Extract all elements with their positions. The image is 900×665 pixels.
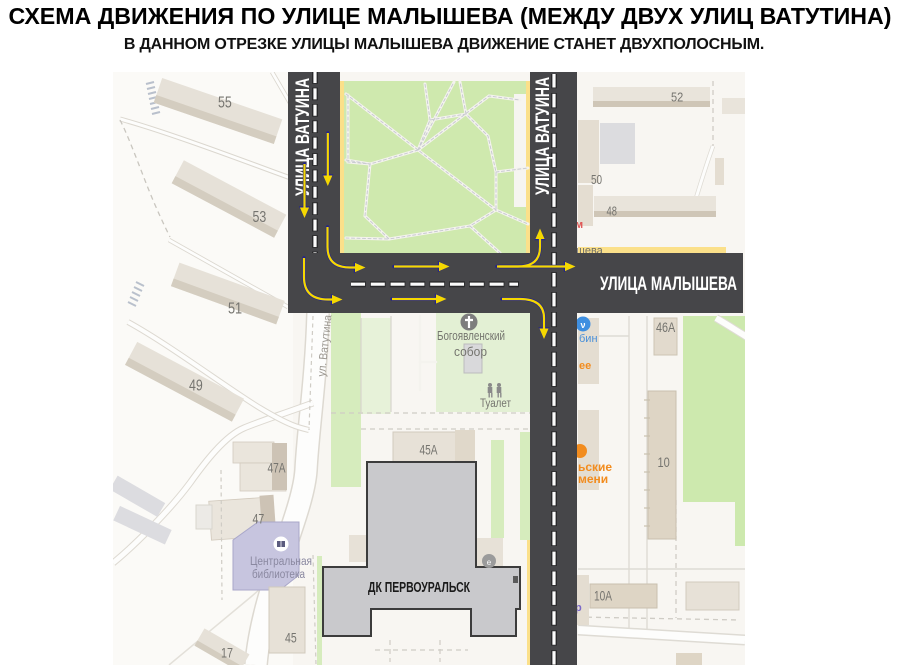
svg-text:ν: ν — [580, 320, 585, 330]
svg-text:библиотека: библиотека — [252, 569, 306, 581]
svg-text:ДК ПЕРВОУРАЛЬСК: ДК ПЕРВОУРАЛЬСК — [368, 580, 470, 596]
svg-text:10: 10 — [658, 455, 670, 470]
svg-text:49: 49 — [189, 376, 203, 394]
svg-text:бин: бин — [579, 333, 598, 345]
svg-text:55: 55 — [218, 93, 232, 111]
svg-text:собор: собор — [454, 345, 487, 359]
svg-text:УЛИЦА ВАТУИНА: УЛИЦА ВАТУИНА — [533, 77, 554, 195]
svg-text:УЛИЦА МАЛЫШЕВА: УЛИЦА МАЛЫШЕВА — [600, 274, 737, 295]
svg-text:48: 48 — [607, 205, 617, 219]
svg-text:10А: 10А — [594, 588, 612, 604]
svg-text:мени: мени — [578, 472, 608, 486]
svg-text:e: e — [487, 558, 492, 567]
svg-text:17: 17 — [221, 645, 233, 660]
svg-text:Центральная: Центральная — [250, 556, 312, 568]
svg-text:ее: ее — [579, 360, 591, 372]
svg-text:47: 47 — [253, 511, 265, 527]
svg-text:46А: 46А — [656, 320, 676, 335]
svg-text:Богоявленский: Богоявленский — [437, 329, 505, 343]
svg-text:Туалет: Туалет — [480, 398, 512, 410]
svg-text:45А: 45А — [420, 442, 438, 458]
svg-text:53: 53 — [253, 208, 267, 226]
svg-text:47А: 47А — [268, 460, 286, 476]
svg-text:52: 52 — [671, 91, 683, 105]
svg-text:51: 51 — [228, 300, 242, 317]
svg-text:45: 45 — [285, 630, 297, 646]
svg-text:50: 50 — [591, 174, 602, 187]
